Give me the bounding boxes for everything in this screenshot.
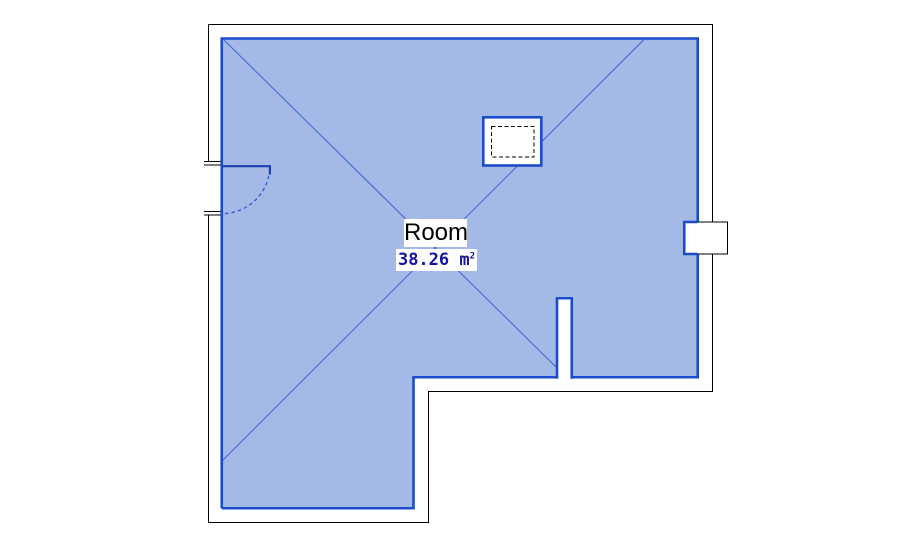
room-name-label[interactable]: Room — [404, 219, 467, 247]
wall-niche[interactable] — [684, 222, 728, 254]
room-area-label[interactable]: 38.26 m2 — [396, 249, 477, 271]
floor-plan-canvas: Room 38.26 m2 — [0, 0, 922, 540]
room-area-value: 38.26 m — [398, 250, 470, 270]
wall-niche-box — [684, 222, 728, 254]
skylight-component[interactable] — [483, 117, 541, 165]
room-area-exponent: 2 — [470, 251, 475, 261]
door-jamb-lines — [204, 162, 222, 216]
